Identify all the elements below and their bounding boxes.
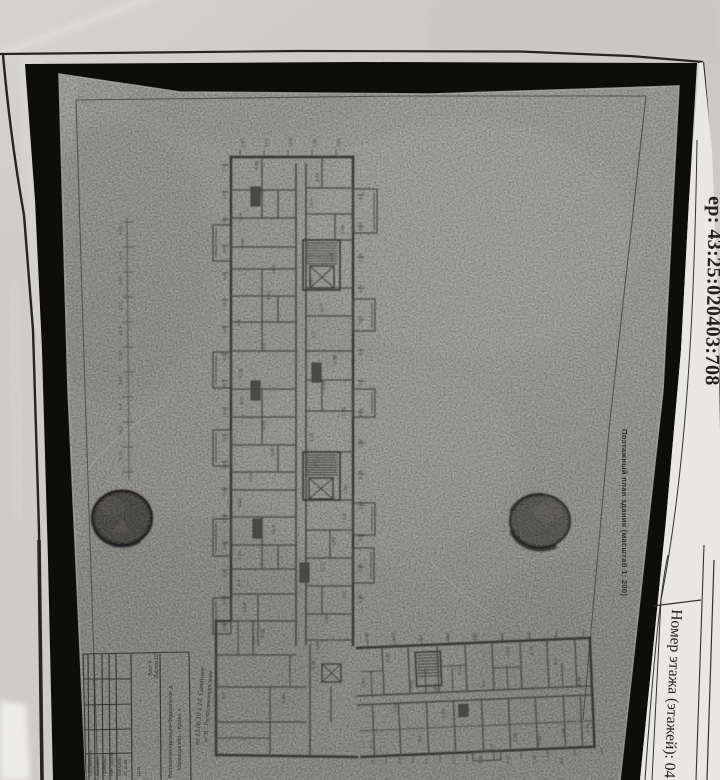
svg-text:4.21: 4.21: [266, 291, 271, 300]
svg-text:1.98: 1.98: [513, 733, 518, 742]
svg-text:9.4: 9.4: [417, 735, 422, 742]
svg-text:4.73: 4.73: [315, 173, 320, 182]
svg-text:2.63: 2.63: [331, 537, 336, 546]
svg-text:Проверил: Проверил: [102, 756, 107, 776]
svg-text:5.99: 5.99: [577, 677, 582, 686]
svg-text:1.98: 1.98: [222, 487, 227, 496]
svg-text:17.1: 17.1: [264, 138, 269, 147]
svg-text:13.6: 13.6: [358, 408, 363, 417]
svg-text:5.99: 5.99: [118, 226, 123, 235]
svg-text:5.99: 5.99: [281, 694, 286, 703]
svg-text:5.18: 5.18: [260, 629, 265, 638]
svg-text:3.02: 3.02: [391, 632, 396, 641]
svg-text:6.4: 6.4: [553, 634, 558, 641]
svg-text:17.1: 17.1: [222, 163, 227, 172]
svg-text:2.87: 2.87: [259, 187, 264, 196]
svg-text:2.63: 2.63: [358, 253, 363, 262]
svg-text:1.50: 1.50: [364, 632, 369, 641]
svg-text:2.87: 2.87: [361, 678, 366, 687]
svg-text:8.9: 8.9: [559, 757, 564, 764]
svg-text:9.4: 9.4: [418, 634, 423, 641]
svg-text:6.4: 6.4: [222, 408, 227, 415]
svg-text:4.21: 4.21: [237, 551, 242, 560]
svg-text:3.02: 3.02: [240, 239, 245, 248]
svg-text:2.87: 2.87: [118, 276, 123, 285]
svg-text:Нач. группы: Нач. группы: [109, 752, 114, 776]
svg-text:6.4: 6.4: [236, 319, 241, 326]
svg-text:Ростехинвентаризация-Федеральн: Ростехинвентаризация-Федеральное, д: [168, 685, 174, 778]
svg-text:2.2: 2.2: [341, 591, 346, 598]
svg-text:16.3: 16.3: [358, 222, 363, 231]
svg-text:4.21: 4.21: [358, 284, 363, 293]
svg-text:2.2: 2.2: [489, 744, 494, 751]
svg-text:2.05: 2.05: [341, 407, 346, 416]
svg-text:3.44: 3.44: [321, 381, 326, 390]
svg-text:2.63: 2.63: [472, 632, 477, 641]
svg-text:1.98: 1.98: [478, 755, 483, 764]
svg-text:12.8: 12.8: [385, 654, 390, 663]
svg-text:1.98: 1.98: [332, 355, 337, 364]
svg-text:2.63: 2.63: [441, 709, 446, 718]
svg-text:16.3: 16.3: [118, 426, 123, 435]
svg-text:2.05: 2.05: [561, 728, 566, 737]
svg-text:Контроль: Контроль: [117, 757, 122, 776]
svg-text:М: М: [0, 67, 1, 80]
svg-text:12.8: 12.8: [238, 213, 243, 222]
svg-text:Листов 10: Листов 10: [154, 654, 160, 678]
svg-text:2.2: 2.2: [311, 331, 316, 338]
svg-text:3.44: 3.44: [315, 641, 320, 650]
svg-text:2.05: 2.05: [358, 563, 363, 572]
svg-text:13.6: 13.6: [222, 460, 227, 469]
svg-text:4.21: 4.21: [457, 666, 462, 675]
svg-text:Дата: Дата: [136, 766, 141, 776]
svg-text:1.98: 1.98: [358, 439, 363, 448]
svg-text:5.18: 5.18: [238, 369, 243, 378]
svg-text:4.21: 4.21: [222, 352, 227, 361]
svg-text:2.2: 2.2: [358, 379, 363, 386]
svg-text:2.87: 2.87: [240, 138, 245, 147]
svg-text:ер: 43:25:020403:708: ер: 43:25:020403:708: [701, 196, 720, 386]
svg-text:3.02: 3.02: [118, 376, 123, 385]
svg-text:Согласовано: Согласовано: [88, 750, 93, 776]
svg-text:5.99: 5.99: [222, 622, 227, 631]
svg-text:4.21: 4.21: [499, 632, 504, 641]
svg-text:11.7: 11.7: [526, 632, 531, 641]
svg-text:8.9: 8.9: [221, 692, 226, 699]
svg-text:17.1: 17.1: [309, 199, 314, 208]
svg-text:3.02: 3.02: [237, 499, 242, 508]
svg-text:5.18: 5.18: [529, 646, 534, 655]
svg-text:4.73: 4.73: [118, 251, 123, 260]
svg-text:1.50: 1.50: [118, 351, 123, 360]
svg-text:8.9: 8.9: [222, 570, 227, 577]
svg-text:3.44: 3.44: [222, 541, 227, 550]
svg-text:12.8: 12.8: [222, 190, 227, 199]
svg-text:1.50: 1.50: [312, 138, 317, 147]
svg-text:6.4: 6.4: [358, 348, 363, 355]
svg-text:17.1: 17.1: [369, 740, 374, 749]
svg-text:8.9: 8.9: [239, 397, 244, 404]
svg-text:13.6: 13.6: [451, 755, 456, 764]
svg-text:16.3: 16.3: [433, 683, 438, 692]
svg-text:13.6: 13.6: [261, 343, 266, 352]
svg-text:2.63: 2.63: [309, 277, 314, 286]
svg-text:8.9: 8.9: [358, 534, 363, 541]
svg-text:5.99: 5.99: [261, 421, 266, 430]
svg-text:9.4: 9.4: [342, 513, 347, 520]
svg-text:16.3: 16.3: [445, 632, 450, 641]
svg-text:1.50: 1.50: [340, 225, 345, 234]
svg-text:4.73: 4.73: [309, 433, 314, 442]
svg-text:2.2: 2.2: [222, 435, 227, 442]
svg-text:5.18: 5.18: [505, 755, 510, 764]
svg-text:16.3: 16.3: [271, 265, 276, 274]
svg-text:6.4: 6.4: [397, 757, 402, 764]
svg-text:13.6: 13.6: [505, 647, 510, 656]
svg-text:6.4: 6.4: [481, 680, 486, 687]
svg-text:11.7: 11.7: [465, 703, 470, 712]
svg-text:11.7: 11.7: [358, 315, 363, 324]
svg-text:5.18: 5.18: [358, 470, 363, 479]
svg-text:Поэтажный план здания (масштаб: Поэтажный план здания (масштаб 1: 200): [620, 429, 629, 596]
svg-text:3.44: 3.44: [532, 755, 537, 764]
svg-text:9.4: 9.4: [358, 193, 363, 200]
svg-text:2.05: 2.05: [251, 636, 256, 645]
svg-text:2.87: 2.87: [270, 447, 275, 456]
svg-text:12.8: 12.8: [118, 326, 123, 335]
svg-text:12.8: 12.8: [288, 138, 293, 147]
svg-text:5.18: 5.18: [222, 514, 227, 523]
svg-text:1.50: 1.50: [222, 217, 227, 226]
svg-text:1.50: 1.50: [343, 485, 348, 494]
svg-text:2.63: 2.63: [222, 325, 227, 334]
svg-text:13.11.06: 13.11.06: [123, 759, 128, 776]
svg-text:1.98: 1.98: [324, 615, 329, 624]
svg-text:5.99: 5.99: [358, 594, 363, 603]
svg-text:11.7: 11.7: [320, 563, 325, 572]
svg-text:12.8: 12.8: [248, 473, 253, 482]
svg-text:5.99: 5.99: [118, 451, 123, 460]
svg-text:Составил: Составил: [95, 756, 100, 776]
svg-text:11.7: 11.7: [319, 303, 324, 312]
svg-text:3.02: 3.02: [336, 138, 341, 147]
svg-text:3.02: 3.02: [409, 680, 414, 689]
svg-text:5.99: 5.99: [254, 161, 259, 170]
svg-text:8.9: 8.9: [553, 658, 558, 665]
svg-text:1.50: 1.50: [393, 703, 398, 712]
svg-text:9.4: 9.4: [329, 253, 334, 260]
svg-text:11.7: 11.7: [222, 379, 227, 388]
svg-text:16.3: 16.3: [271, 525, 276, 534]
svg-text:3.02: 3.02: [222, 244, 227, 253]
svg-text:6.4: 6.4: [236, 579, 241, 586]
svg-text:13.6: 13.6: [242, 603, 247, 612]
svg-text:17.1: 17.1: [313, 459, 318, 468]
svg-text:16.3: 16.3: [222, 298, 227, 307]
svg-text:4.73: 4.73: [585, 724, 590, 733]
svg-text:3.44: 3.44: [537, 736, 542, 745]
svg-text:4.73: 4.73: [311, 660, 316, 669]
svg-text:9.4: 9.4: [118, 403, 123, 410]
svg-text:2.05: 2.05: [222, 595, 227, 604]
svg-text:17.1: 17.1: [118, 301, 123, 310]
svg-text:2.2: 2.2: [424, 757, 429, 764]
svg-text:9.4: 9.4: [222, 273, 227, 280]
svg-text:11.7: 11.7: [370, 755, 375, 764]
svg-text:3.44: 3.44: [358, 501, 363, 510]
svg-text:Кировская обл., г.Курган, ч: Кировская обл., г.Курган, ч: [177, 708, 183, 770]
